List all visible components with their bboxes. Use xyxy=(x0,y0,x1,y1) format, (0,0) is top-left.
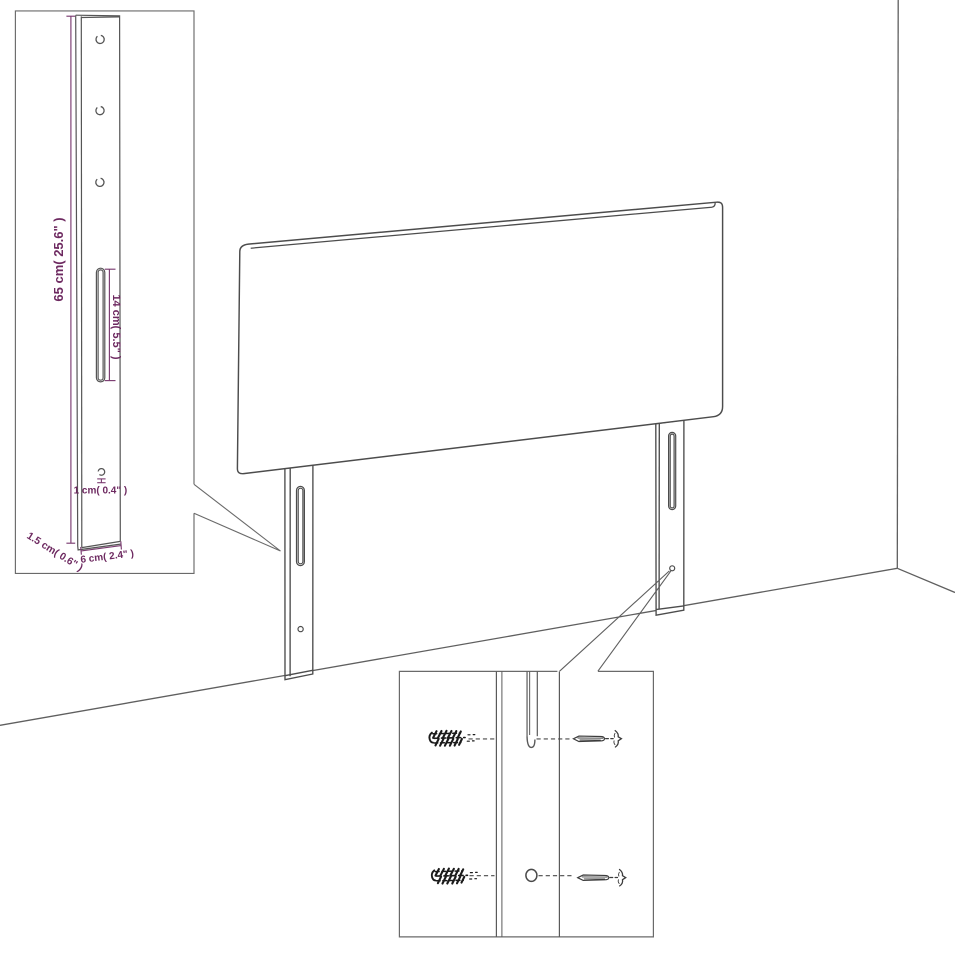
svg-text:65 cm( 25.6" ): 65 cm( 25.6" ) xyxy=(51,217,66,301)
svg-text:1 cm( 0.4" ): 1 cm( 0.4" ) xyxy=(74,485,128,496)
svg-text:14 cm( 5.5" ): 14 cm( 5.5" ) xyxy=(110,294,122,359)
